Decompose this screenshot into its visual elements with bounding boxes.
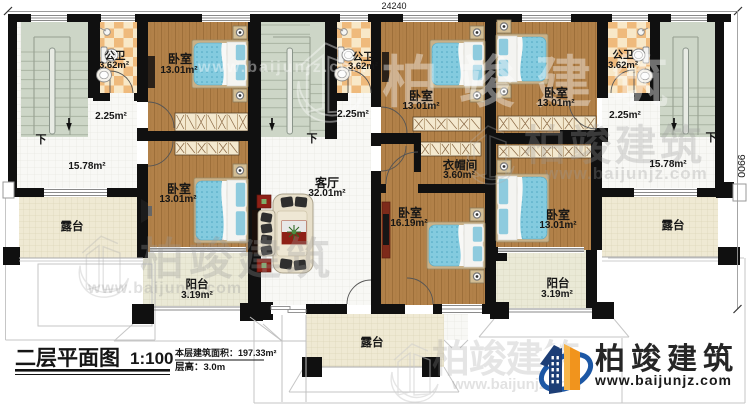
svg-text:3.62m²: 3.62m² xyxy=(99,60,129,71)
svg-text:www.baijunjz.com: www.baijunjz.com xyxy=(197,59,368,76)
svg-text:9900: 9900 xyxy=(735,154,747,178)
svg-text:露台: 露台 xyxy=(361,335,384,349)
svg-text:13.01m²: 13.01m² xyxy=(402,101,440,112)
svg-text:下: 下 xyxy=(36,133,47,146)
svg-text:13.01m²: 13.01m² xyxy=(537,98,575,109)
svg-text:15.78m²: 15.78m² xyxy=(649,159,687,170)
svg-text:13.01m²: 13.01m² xyxy=(539,220,577,231)
svg-text:2.25m²: 2.25m² xyxy=(337,109,369,120)
svg-text:www.baijunjz.com: www.baijunjz.com xyxy=(594,372,731,388)
svg-text:3.19m²: 3.19m² xyxy=(181,290,213,301)
svg-text:二层平面图: 二层平面图 xyxy=(15,347,120,370)
svg-text:3.60m²: 3.60m² xyxy=(443,170,475,181)
svg-text:3.19m²: 3.19m² xyxy=(541,289,573,300)
svg-text:卧室: 卧室 xyxy=(168,51,192,66)
svg-text:2.25m²: 2.25m² xyxy=(609,110,641,121)
svg-text:露台: 露台 xyxy=(662,218,685,232)
svg-text:2.25m²: 2.25m² xyxy=(95,111,127,122)
svg-text:本层建筑面积：197.33m²: 本层建筑面积：197.33m² xyxy=(175,347,277,358)
svg-text:露台: 露台 xyxy=(61,219,84,233)
svg-text:下: 下 xyxy=(307,132,318,145)
svg-text:阳台: 阳台 xyxy=(547,276,570,290)
svg-text:24240: 24240 xyxy=(381,1,406,11)
svg-text:15.78m²: 15.78m² xyxy=(68,161,106,172)
svg-text:13.01m²: 13.01m² xyxy=(160,65,198,76)
svg-text:16.19m²: 16.19m² xyxy=(390,218,428,229)
svg-text:www.baijunjz.com: www.baijunjz.com xyxy=(87,280,242,297)
svg-text:层高：3.0m: 层高：3.0m xyxy=(175,361,225,373)
svg-text:1:100: 1:100 xyxy=(130,349,173,368)
svg-text:3.62m²: 3.62m² xyxy=(348,61,378,72)
svg-text:32.01m²: 32.01m² xyxy=(308,188,346,199)
svg-text:阳台: 阳台 xyxy=(186,277,209,291)
svg-text:13.01m²: 13.01m² xyxy=(159,194,197,205)
svg-text:3.62m²: 3.62m² xyxy=(608,60,638,71)
svg-text:下: 下 xyxy=(706,131,717,144)
